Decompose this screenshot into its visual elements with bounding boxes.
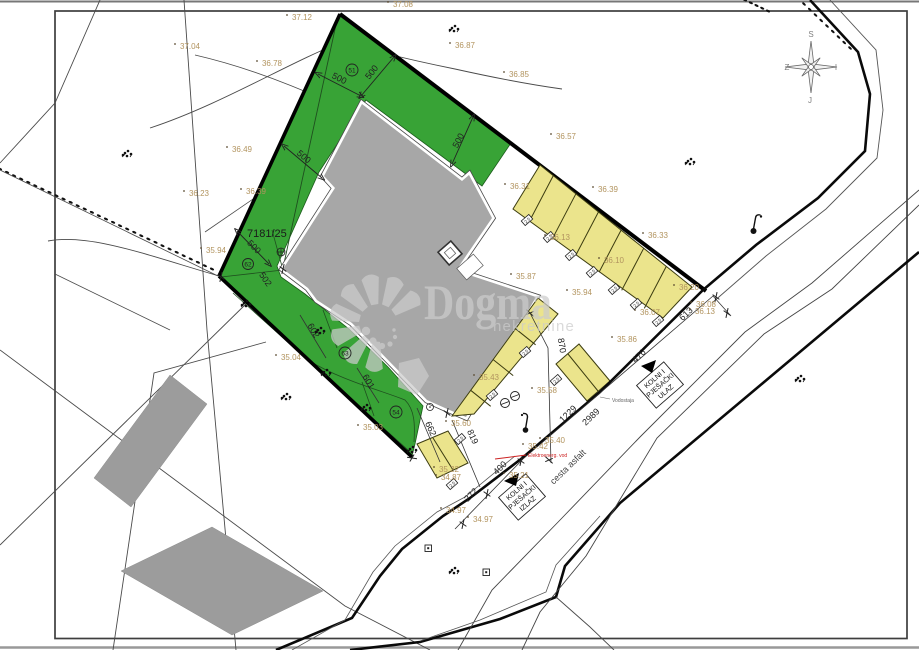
svg-text:36.20: 36.20 — [679, 283, 700, 292]
svg-text:36.85: 36.85 — [509, 70, 530, 79]
svg-text:36.39: 36.39 — [246, 187, 267, 196]
svg-text:Vodostaja: Vodostaja — [612, 398, 634, 404]
svg-text:37.08: 37.08 — [393, 0, 414, 9]
svg-text:35.86: 35.86 — [617, 335, 638, 344]
svg-text:7181/25: 7181/25 — [247, 228, 287, 240]
svg-text:J: J — [808, 96, 812, 105]
svg-text:35.94: 35.94 — [206, 246, 227, 255]
svg-text:51: 51 — [348, 68, 356, 75]
svg-text:Z: Z — [785, 63, 790, 72]
svg-text:35.04: 35.04 — [281, 353, 302, 362]
svg-text:36.78: 36.78 — [262, 59, 283, 68]
svg-text:nekretnine: nekretnine — [493, 318, 575, 335]
svg-text:35.94: 35.94 — [572, 288, 593, 297]
svg-text:35.40: 35.40 — [545, 436, 566, 445]
svg-text:36.13: 36.13 — [695, 307, 716, 316]
svg-text:35.60: 35.60 — [451, 419, 472, 428]
svg-text:35.21: 35.21 — [509, 471, 530, 480]
svg-text:35.58: 35.58 — [537, 386, 558, 395]
svg-text:37.12: 37.12 — [292, 13, 313, 22]
svg-text:I: I — [835, 63, 837, 72]
svg-text:35.03: 35.03 — [363, 423, 384, 432]
svg-text:34.97: 34.97 — [446, 506, 467, 515]
svg-text:35.87: 35.87 — [516, 272, 537, 281]
svg-text:35.43: 35.43 — [479, 373, 500, 382]
svg-text:36.39: 36.39 — [598, 185, 619, 194]
svg-text:36.31: 36.31 — [510, 182, 531, 191]
svg-text:34.97: 34.97 — [473, 515, 494, 524]
svg-text:37.04: 37.04 — [180, 42, 201, 51]
svg-text:36.10: 36.10 — [604, 256, 625, 265]
svg-text:36.49: 36.49 — [232, 145, 253, 154]
svg-text:36.87: 36.87 — [455, 41, 476, 50]
svg-text:36.23: 36.23 — [189, 189, 210, 198]
svg-text:36.07: 36.07 — [640, 308, 661, 317]
svg-text:54: 54 — [392, 410, 400, 417]
svg-text:36.33: 36.33 — [648, 231, 669, 240]
svg-text:34.87: 34.87 — [441, 473, 462, 482]
svg-text:63: 63 — [341, 351, 349, 358]
svg-text:36.57: 36.57 — [556, 132, 577, 141]
svg-text:Elektroenerg. vod: Elektroenerg. vod — [528, 453, 567, 459]
svg-text:62: 62 — [244, 262, 252, 269]
svg-text:S: S — [808, 30, 813, 39]
svg-text:35.42: 35.42 — [528, 442, 549, 451]
svg-text:36.13: 36.13 — [550, 233, 571, 242]
